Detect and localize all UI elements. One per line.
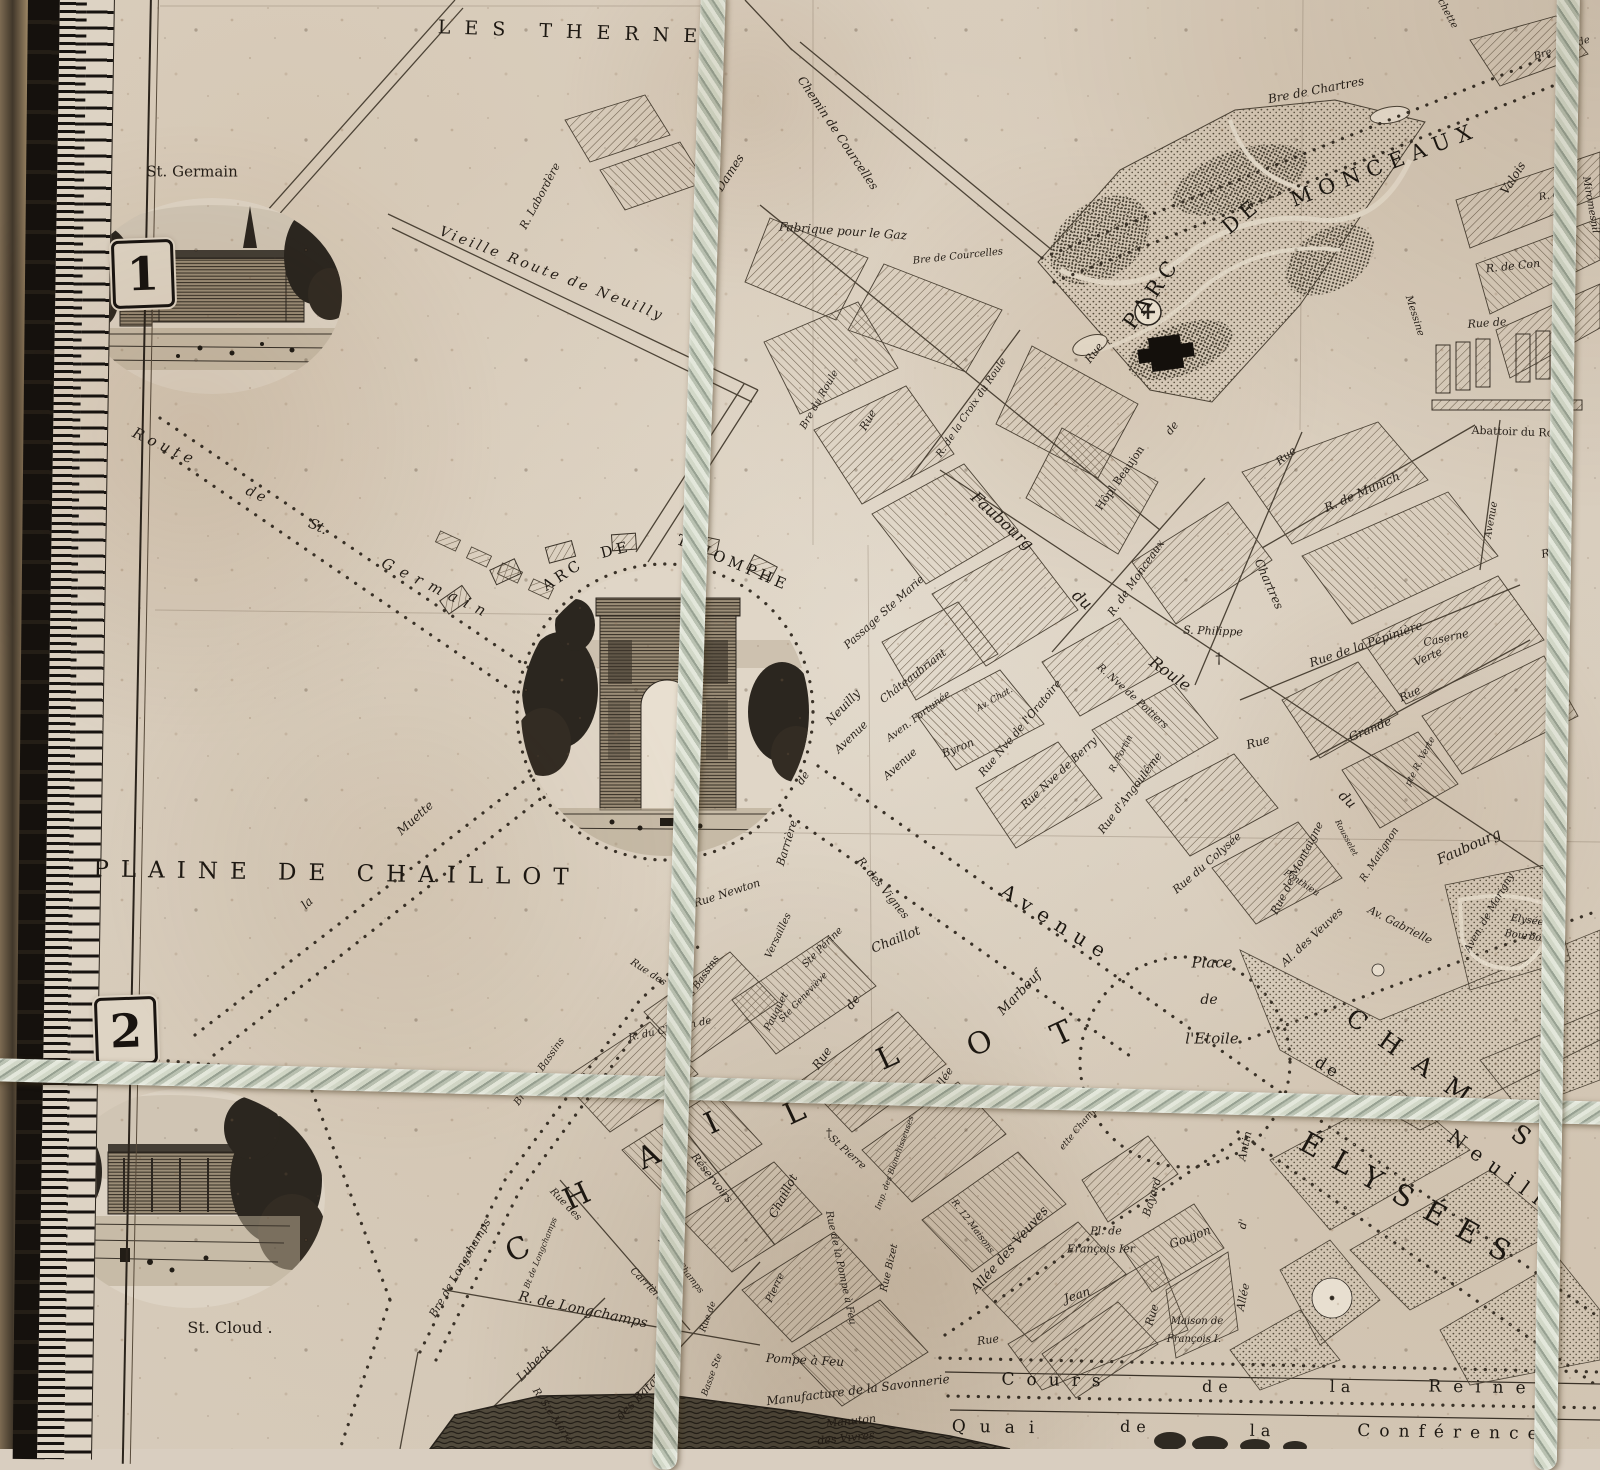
paper-speckle <box>0 0 1600 1449</box>
section-number-1: 1 <box>126 246 160 301</box>
section-number-2: 2 <box>109 1003 143 1058</box>
section-number-plate-2: 2 <box>94 996 158 1066</box>
map-sheet: LES THERNESSt. GermainChemin de Courcell… <box>0 0 1600 1449</box>
map-engraving <box>0 0 1600 1449</box>
section-number-plate-1: 1 <box>111 239 175 309</box>
